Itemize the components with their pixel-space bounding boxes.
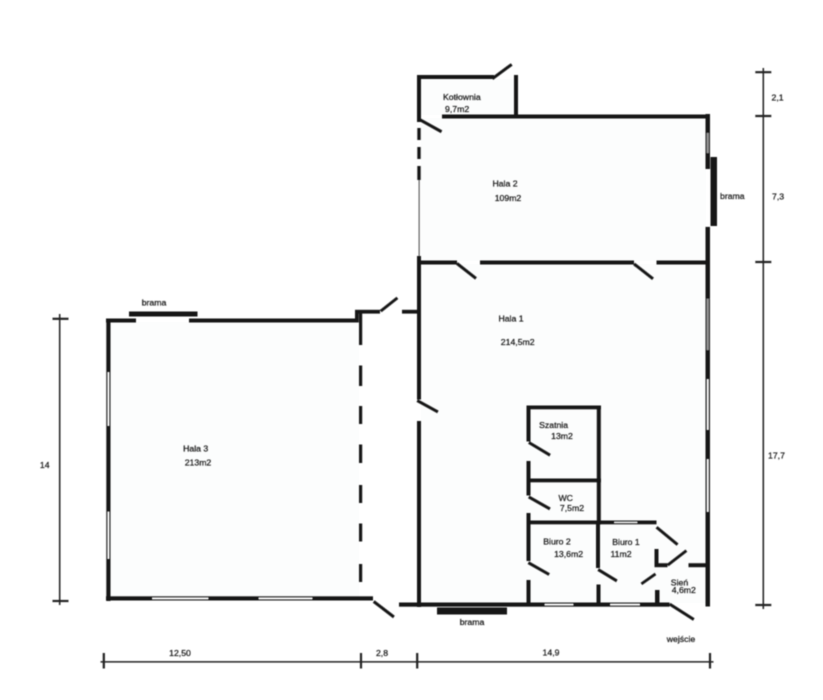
svg-text:Szatnia: Szatnia [539,420,568,430]
svg-text:brama: brama [720,191,745,201]
svg-text:7,5m2: 7,5m2 [560,503,584,513]
svg-text:213m2: 213m2 [185,458,212,468]
svg-text:Hala 2: Hala 2 [492,179,517,189]
svg-text:4,6m2: 4,6m2 [672,585,696,595]
svg-text:Hala 3: Hala 3 [183,443,208,453]
svg-text:214,5m2: 214,5m2 [501,337,535,347]
svg-text:14,9: 14,9 [543,648,560,658]
svg-text:brama: brama [460,617,485,627]
svg-text:14: 14 [40,460,50,470]
svg-text:Kotłownia: Kotłownia [443,92,481,102]
svg-text:13,6m2: 13,6m2 [554,549,583,559]
svg-text:17,7: 17,7 [768,451,785,461]
svg-text:WC: WC [558,493,572,503]
svg-text:2,8: 2,8 [376,648,388,658]
svg-text:9,7m2: 9,7m2 [445,104,469,114]
svg-text:Biuro 2: Biuro 2 [543,537,571,547]
svg-text:11m2: 11m2 [610,549,631,559]
svg-text:Hala 1: Hala 1 [498,314,523,324]
svg-text:wejście: wejście [666,634,696,644]
svg-text:12,50: 12,50 [169,648,191,658]
svg-text:Biuro 1: Biuro 1 [612,537,640,547]
svg-text:109m2: 109m2 [495,193,522,203]
svg-text:brama: brama [142,298,167,308]
svg-text:7,3: 7,3 [772,192,784,202]
svg-text:13m2: 13m2 [551,431,573,441]
svg-text:2,1: 2,1 [772,93,784,103]
